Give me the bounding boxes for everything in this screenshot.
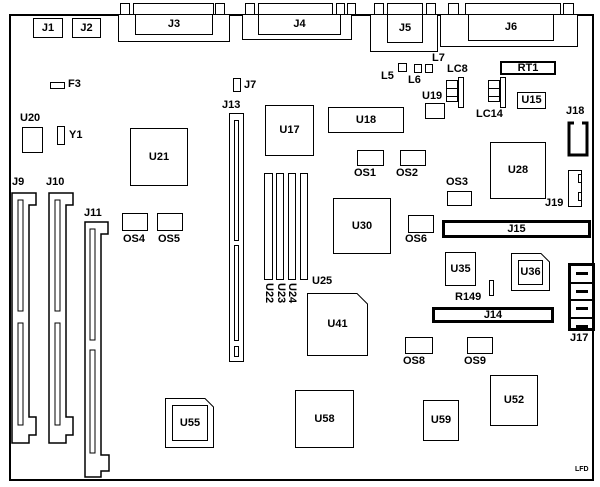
component-y1	[57, 126, 65, 145]
j17-pin-1	[571, 266, 592, 282]
label-os6: OS6	[405, 234, 427, 245]
component-u36: U36	[518, 260, 543, 285]
j19-pin-top	[578, 174, 582, 183]
label-j14: J14	[484, 310, 502, 321]
label-j13: J13	[222, 100, 240, 111]
component-u25	[300, 173, 308, 280]
label-os4: OS4	[123, 234, 145, 245]
label-y1: Y1	[69, 130, 82, 141]
label-l7: L7	[432, 53, 445, 64]
component-os5	[157, 213, 183, 231]
component-u52: U52	[490, 375, 538, 426]
lc8-cells	[446, 80, 458, 102]
lc14-cells	[488, 80, 500, 102]
component-u22	[264, 173, 273, 280]
label-u15: U15	[521, 95, 541, 106]
board-diagram: J1 J2 J3 J4 J5 J6 F3 U20 Y1 U21 J9 J10 J…	[0, 0, 600, 487]
label-rt1: RT1	[518, 63, 539, 74]
component-l6	[414, 64, 422, 73]
component-u19	[425, 103, 445, 119]
label-u35: U35	[450, 264, 470, 275]
label-os3: OS3	[446, 177, 468, 188]
label-os5: OS5	[158, 234, 180, 245]
component-os4	[122, 213, 148, 231]
component-u17: U17	[265, 105, 314, 156]
component-j5: J5	[387, 14, 423, 43]
label-u30: U30	[352, 221, 372, 232]
label-lc8: LC8	[447, 64, 468, 75]
label-u28: U28	[508, 165, 528, 176]
label-j7: J7	[244, 80, 256, 91]
label-u20: U20	[20, 113, 40, 124]
label-u24: U24	[286, 283, 297, 303]
label-j11: J11	[84, 208, 102, 219]
label-u17: U17	[279, 125, 299, 136]
component-j15: J15	[442, 220, 591, 238]
label-u25: U25	[312, 276, 332, 287]
label-l5: L5	[381, 71, 394, 82]
label-l6: L6	[408, 75, 421, 86]
component-u21: U21	[130, 128, 188, 186]
label-j15: J15	[507, 224, 525, 235]
label-j3: J3	[168, 19, 180, 30]
component-u24	[288, 173, 296, 280]
component-j4: J4	[258, 14, 341, 35]
component-j17	[568, 263, 595, 331]
label-u59: U59	[431, 415, 451, 426]
label-j17: J17	[570, 333, 588, 344]
component-j10	[47, 192, 75, 444]
label-j9: J9	[12, 177, 24, 188]
label-os2: OS2	[396, 168, 418, 179]
label-os1: OS1	[354, 168, 376, 179]
component-j2: J2	[72, 18, 101, 38]
component-j1: J1	[33, 18, 63, 38]
label-u21: U21	[149, 152, 169, 163]
label-f3: F3	[68, 79, 81, 90]
j13-slot-bottom	[234, 346, 239, 357]
label-r149: R149	[455, 292, 481, 303]
label-lc14: LC14	[476, 109, 503, 120]
label-j18: J18	[566, 106, 584, 117]
component-os6	[408, 215, 434, 233]
component-u15: U15	[517, 92, 546, 109]
component-os3	[447, 191, 472, 206]
component-u59: U59	[423, 400, 459, 441]
label-u19: U19	[422, 91, 442, 102]
component-os1	[357, 150, 384, 166]
label-u55: U55	[180, 418, 200, 429]
component-r149	[489, 280, 494, 296]
j13-slot-middle	[234, 245, 239, 341]
component-u41: U41	[307, 293, 368, 356]
component-u20	[22, 127, 43, 153]
label-u58: U58	[314, 414, 334, 425]
component-j14: J14	[432, 307, 554, 323]
label-j1: J1	[42, 23, 54, 34]
component-l7	[425, 64, 433, 73]
component-os2	[400, 150, 426, 166]
component-os9	[467, 337, 493, 354]
j17-pin-2	[571, 282, 592, 300]
label-os9: OS9	[464, 356, 486, 367]
component-u23	[276, 173, 284, 280]
component-lc8	[458, 77, 464, 108]
label-j5: J5	[399, 23, 411, 34]
component-lc14	[500, 77, 506, 108]
label-u41: U41	[327, 319, 347, 330]
label-u22: U22	[263, 283, 274, 303]
component-j11	[84, 220, 112, 480]
label-j19: J19	[545, 198, 563, 209]
component-u55: U55	[172, 405, 208, 441]
label-j6: J6	[505, 22, 517, 33]
label-u18: U18	[356, 115, 376, 126]
component-j7	[233, 78, 241, 92]
label-j2: J2	[80, 23, 92, 34]
component-j6: J6	[468, 14, 554, 41]
label-u52: U52	[504, 395, 524, 406]
component-u28: U28	[490, 142, 546, 199]
component-u18: U18	[328, 107, 404, 133]
j19-pin-bottom	[578, 192, 582, 201]
j17-pin-3	[571, 299, 592, 317]
component-u35: U35	[445, 252, 476, 286]
board-watermark: LFD	[575, 466, 589, 473]
component-l5	[398, 63, 407, 72]
component-j9	[10, 192, 38, 444]
component-u58: U58	[295, 390, 354, 448]
label-j10: J10	[46, 177, 64, 188]
label-u36: U36	[520, 267, 540, 278]
label-j4: J4	[293, 19, 305, 30]
component-os8	[405, 337, 433, 354]
label-os8: OS8	[403, 356, 425, 367]
component-rt1: RT1	[500, 61, 556, 75]
j13-slot-top	[234, 120, 239, 241]
component-j18	[566, 118, 590, 160]
component-u30: U30	[333, 198, 391, 254]
component-f3	[50, 82, 65, 89]
component-j3: J3	[135, 14, 213, 35]
label-u23: U23	[275, 283, 286, 303]
